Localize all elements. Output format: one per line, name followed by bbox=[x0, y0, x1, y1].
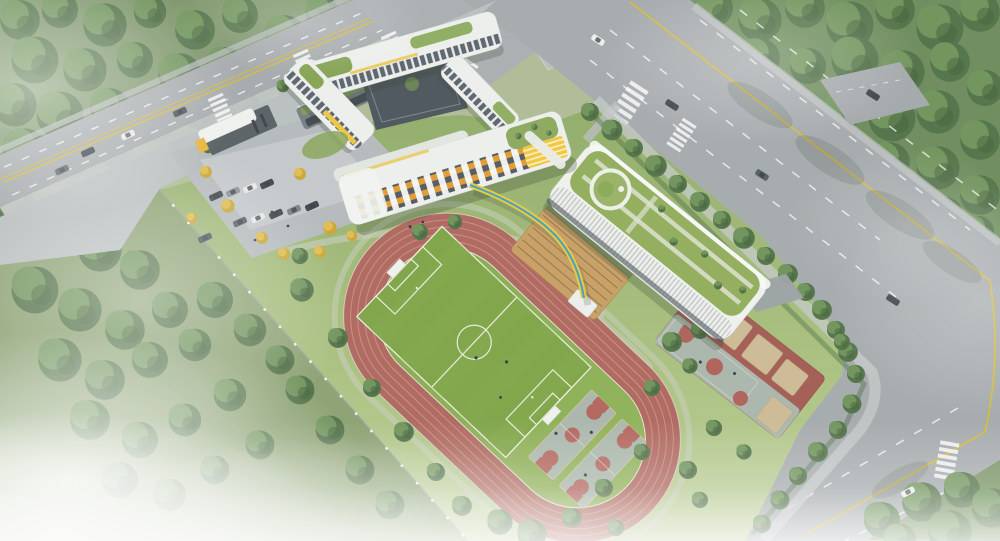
campus-aerial-render bbox=[0, 0, 1000, 541]
fog-overlays bbox=[0, 0, 1000, 541]
